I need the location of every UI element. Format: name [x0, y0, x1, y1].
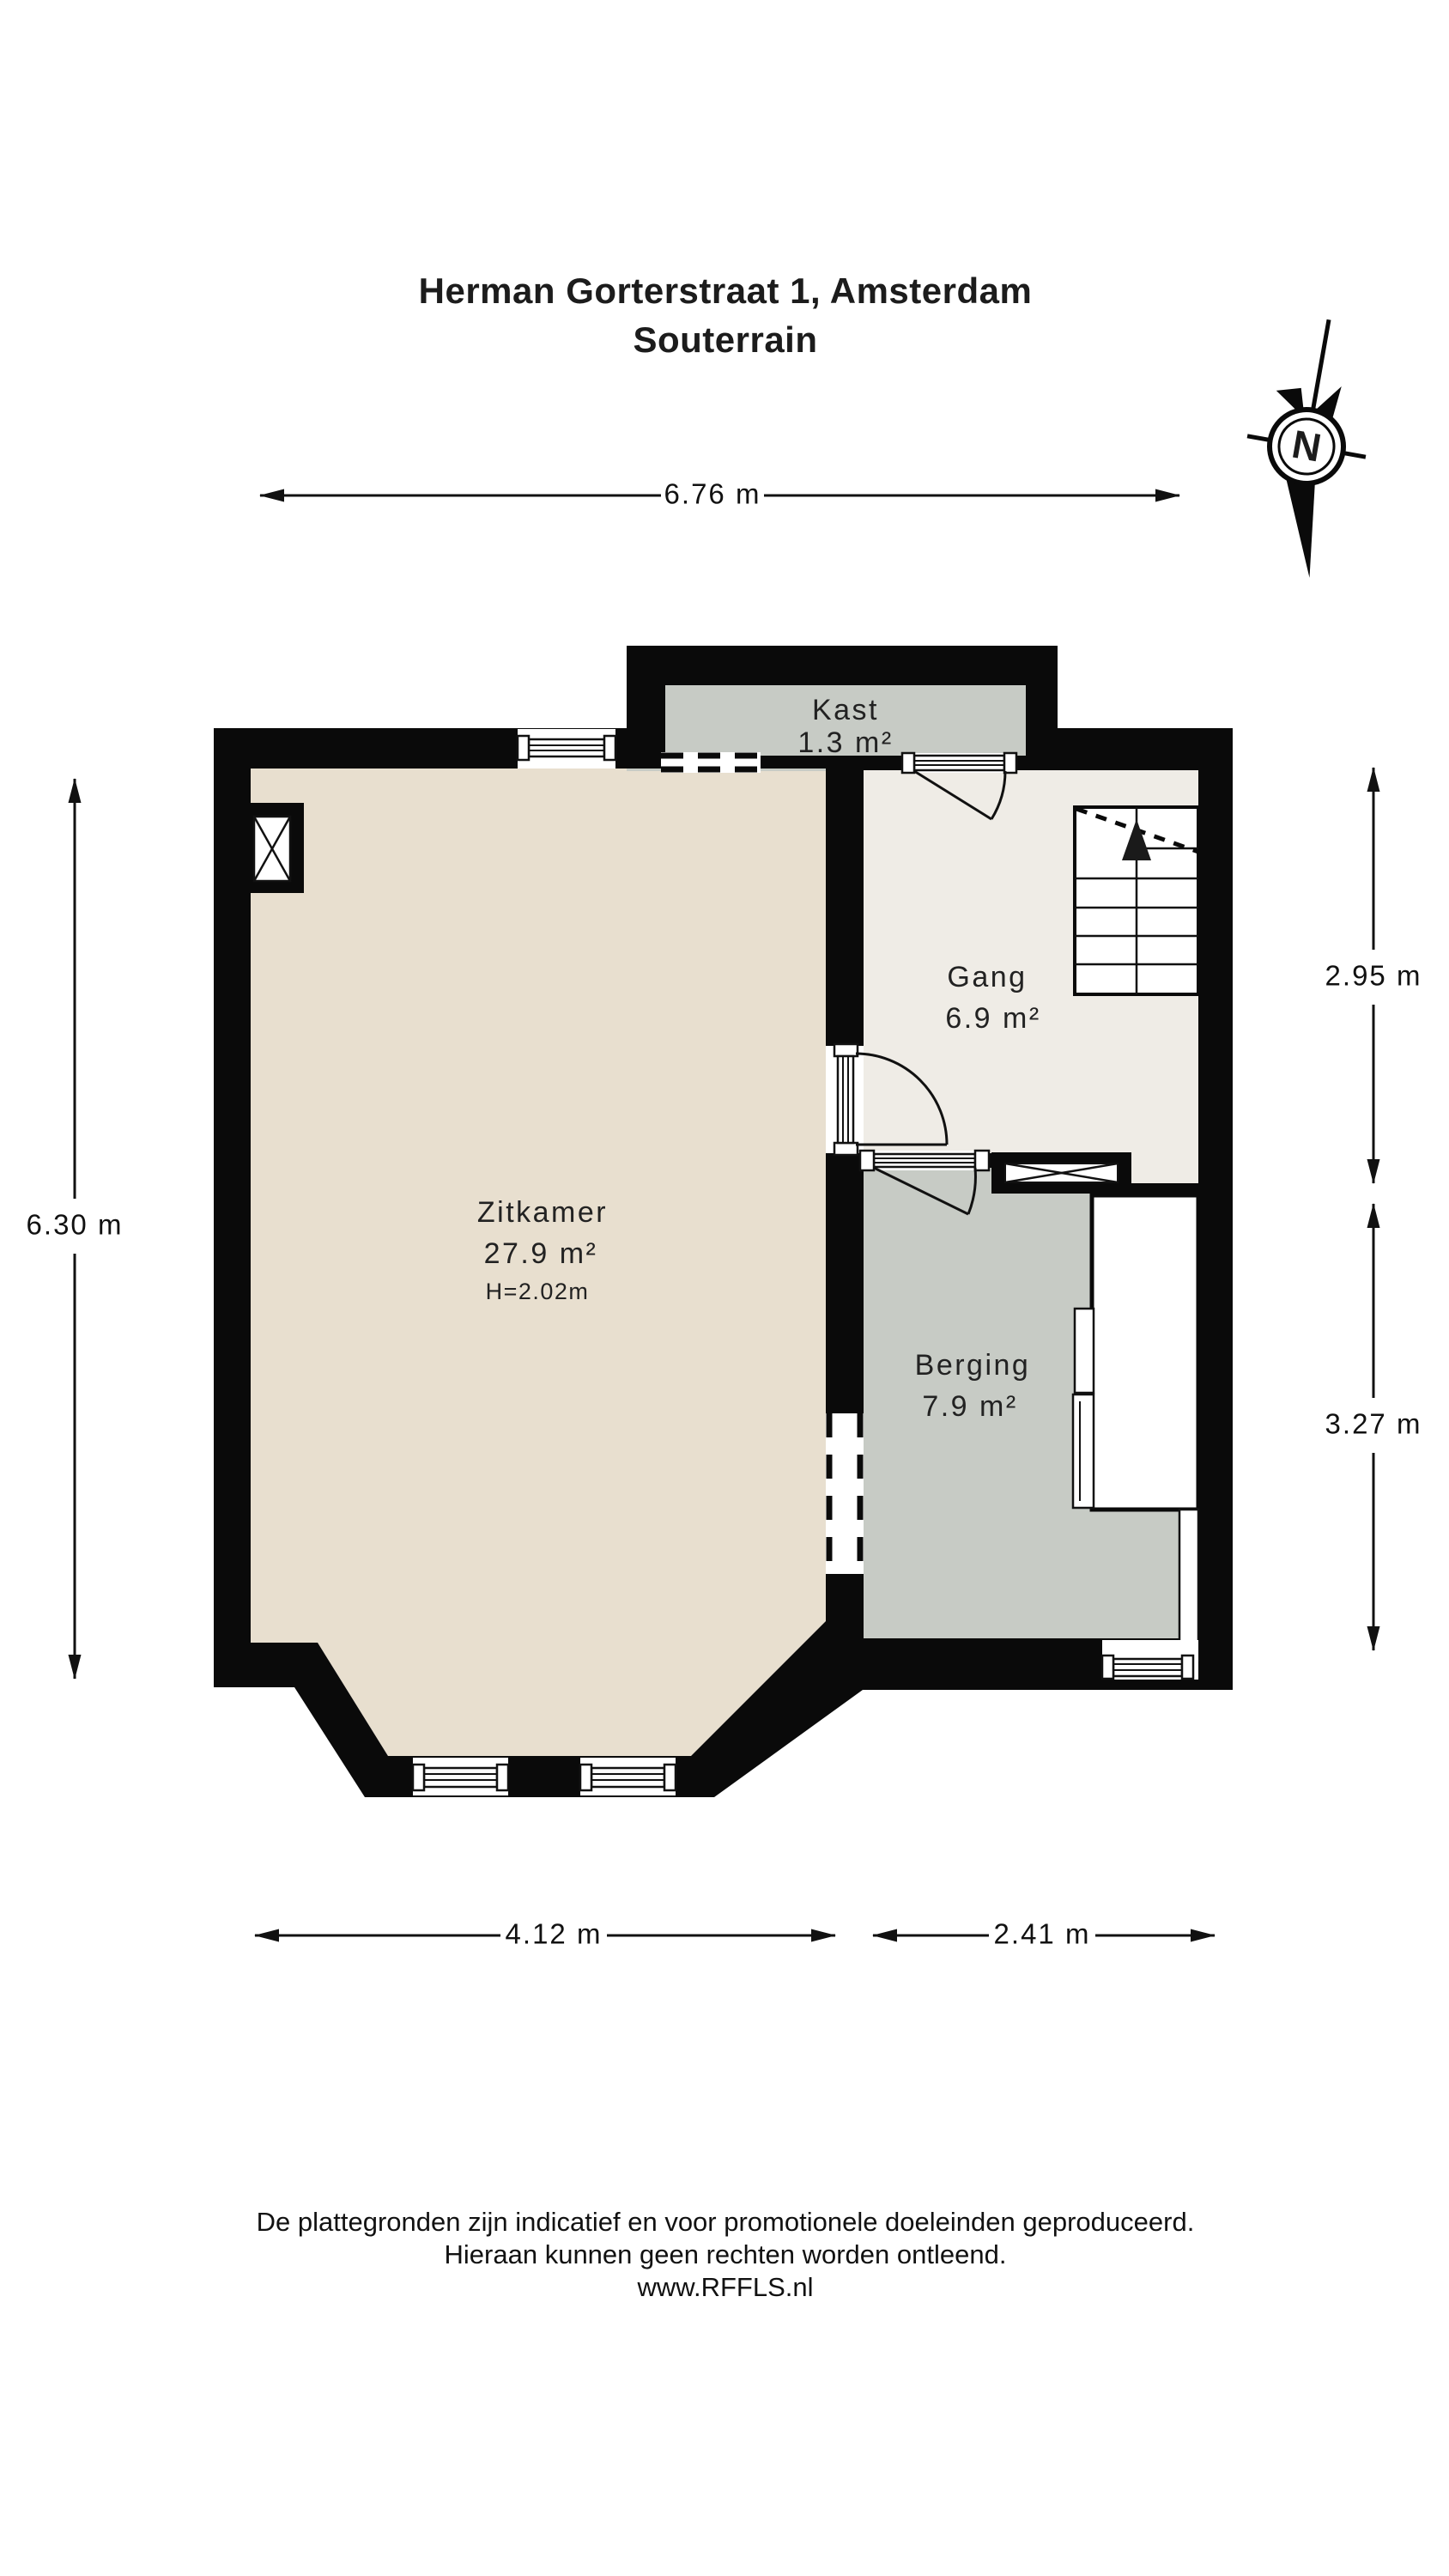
flue-icon — [251, 803, 304, 893]
dimension-right-lower: 3.27 m — [1325, 1204, 1422, 1650]
floor-fills — [251, 646, 1198, 1756]
dashed-opening-berging — [826, 1413, 864, 1574]
footer-line1: De plattegronden zijn indicatief en voor… — [257, 2207, 1195, 2237]
zitkamer-height: H=2.02m — [486, 1279, 590, 1304]
window-icon-bay-right — [580, 1758, 676, 1795]
dimension-right-upper-label: 2.95 m — [1325, 960, 1422, 992]
zitkamer-label: Zitkamer — [477, 1196, 608, 1229]
dimension-bottom-left-label: 4.12 m — [506, 1918, 603, 1950]
berging-area: 7.9 m² — [922, 1390, 1017, 1423]
footer-website: www.RFFLS.nl — [637, 2272, 814, 2302]
dimension-bottom-right-label: 2.41 m — [994, 1918, 1091, 1950]
stairs-icon — [1075, 807, 1198, 994]
dimension-right-lower-label: 3.27 m — [1325, 1408, 1422, 1440]
footer-disclaimer: De plattegronden zijn indicatief en voor… — [257, 2207, 1195, 2302]
kast-label: Kast — [812, 694, 879, 726]
zitkamer-area: 27.9 m² — [484, 1237, 598, 1270]
berging-label: Berging — [915, 1349, 1031, 1382]
compass-icon: N — [1225, 309, 1388, 584]
window-icon-top — [518, 729, 615, 769]
window-icon-bay-left — [413, 1758, 508, 1795]
dimension-top-label: 6.76 m — [664, 478, 761, 510]
floorplan-canvas: Herman Gorterstraat 1, Amsterdam Souterr… — [0, 0, 1449, 2576]
dimension-bottom-right: 2.41 m — [873, 1918, 1215, 1950]
gang-label: Gang — [947, 961, 1027, 993]
shaft-icon — [991, 1152, 1131, 1194]
dimension-right-upper: 2.95 m — [1325, 768, 1422, 1183]
floorplan-page: Herman Gorterstraat 1, Amsterdam Souterr… — [0, 0, 1449, 2576]
dimension-left: 6.30 m — [27, 779, 124, 1679]
page-title-line1: Herman Gorterstraat 1, Amsterdam — [419, 270, 1033, 311]
dimension-top: 6.76 m — [260, 478, 1179, 510]
footer-line2: Hieraan kunnen geen rechten worden ontle… — [445, 2239, 1007, 2269]
dimension-left-label: 6.30 m — [27, 1209, 124, 1241]
window-icon-berging — [1102, 1640, 1198, 1680]
kast-area: 1.3 m² — [797, 726, 893, 759]
dimension-bottom-left: 4.12 m — [255, 1918, 835, 1950]
gang-area: 6.9 m² — [945, 1002, 1040, 1035]
dashed-opening-kast — [661, 752, 761, 773]
page-title-line2: Souterrain — [633, 319, 817, 360]
compass-south-spike — [1268, 470, 1327, 578]
